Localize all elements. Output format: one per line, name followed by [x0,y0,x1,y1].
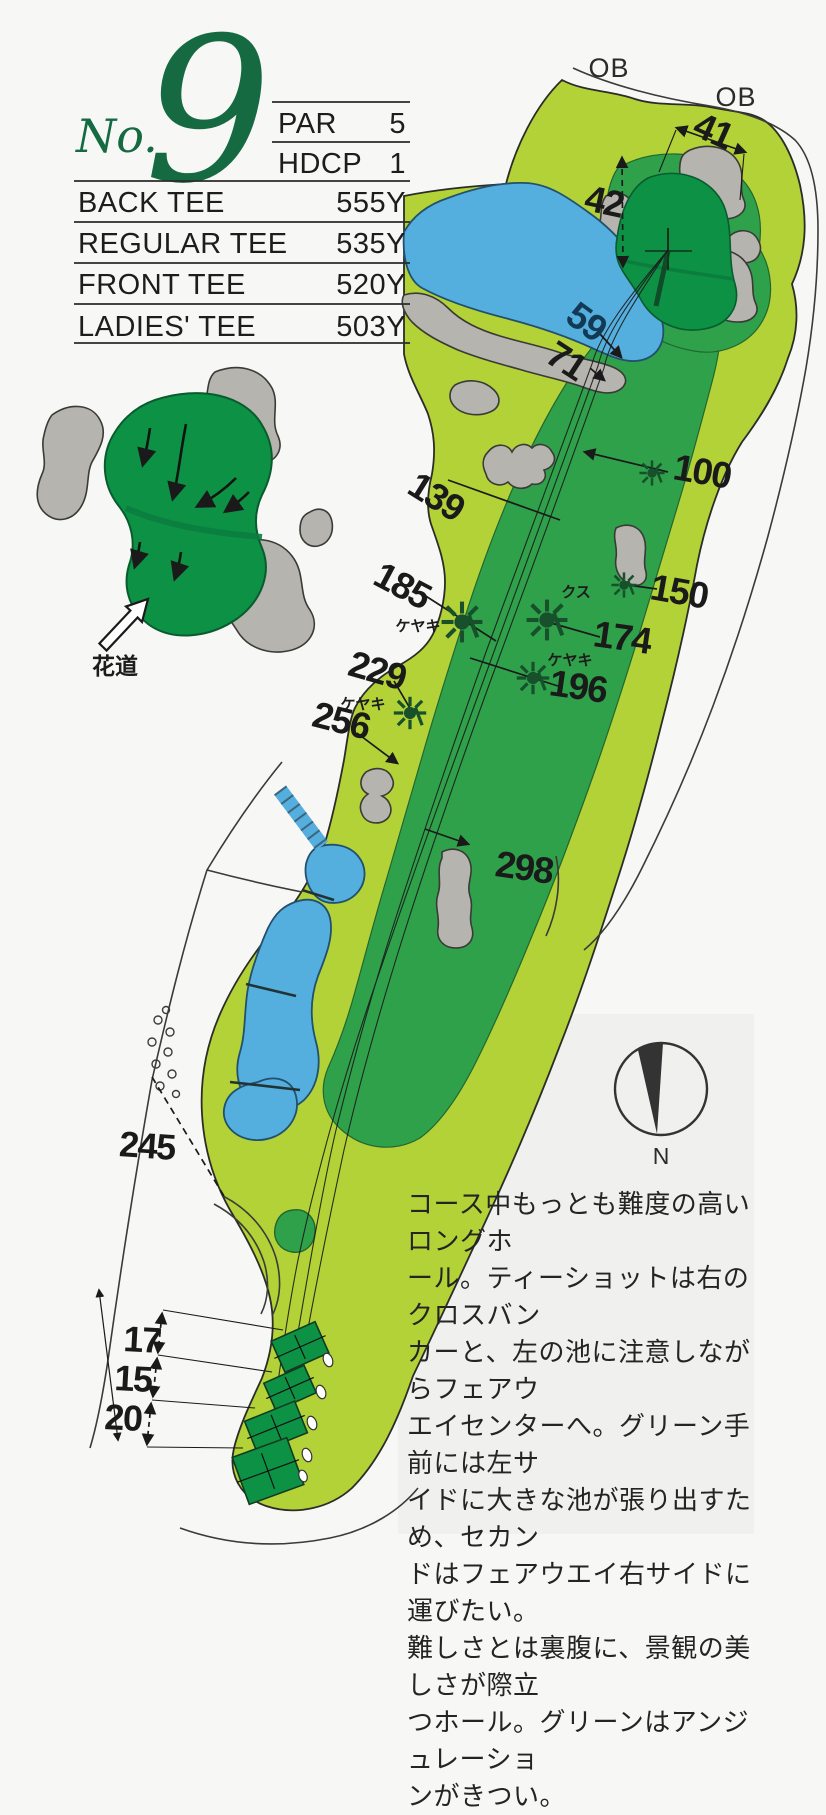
ladies-tee-label: LADIES' TEE [78,311,256,343]
bunker [300,509,332,546]
tee-leader [163,1310,283,1330]
tee-leader [152,1400,255,1408]
bunker [615,525,647,585]
tree-icon [442,602,483,643]
regular-tee-label: REGULAR TEE [78,228,288,260]
tree-label-keyaki: ケヤキ [547,652,592,669]
tree-icon [517,662,549,694]
yardage-229: 229 [344,643,411,698]
rocky-grove [148,1007,180,1098]
bunker [437,849,473,948]
yardage-196: 196 [547,662,610,711]
front-tee-label: FRONT TEE [78,269,246,301]
ob-label: OB [588,53,629,83]
yardage-185: 185 [367,554,438,618]
approach-green-blob [275,1210,315,1253]
tree-label-keyaki: ケヤキ [340,696,385,713]
tee-leader [158,1355,272,1372]
ob-label: OB [715,82,756,112]
yardage-298: 298 [493,843,556,892]
green-detail-inset [37,368,332,652]
left-boundary-branch [207,870,302,892]
approach-direction-arrow [99,599,148,651]
hdcp-label: HDCP [278,148,362,180]
tree-icon [527,600,568,641]
back-tee-label: BACK TEE [78,187,225,219]
tree-label-keyaki: ケヤキ [395,618,440,635]
tee-leader [147,1447,243,1448]
front-tee-value: 520Y [336,269,406,301]
yardage-20: 20 [103,1396,143,1439]
yardage-245: 245 [118,1123,178,1168]
hole-header: No. 9 PAR 5 HDCP 1 BACK TEE 555Y REGULAR… [74,0,410,343]
yardage-17: 17 [122,1318,162,1361]
ladies-tee-value: 503Y [336,311,406,343]
back-tee-value: 555Y [336,187,406,219]
measure-20-seg [147,1404,151,1444]
regular-tee-value: 535Y [336,228,406,260]
tree-label-kusu: クス [561,584,591,601]
compass-north-label: N [653,1143,670,1169]
yardage-174: 174 [591,613,655,662]
par-value: 5 [389,108,406,140]
tree-icon [394,697,426,729]
detail-green [105,393,272,635]
tree-icon [639,460,664,485]
hole-description: コース中もっとも難度の高いロングホ ール。ティーショットは右のクロスバン カーと… [407,1186,757,1815]
par-label: PAR [278,108,337,140]
tree-icon [611,572,636,597]
bunker [37,406,103,519]
measure-15-seg [153,1359,157,1396]
yardage-15: 15 [113,1357,154,1400]
approach-label: 花道 [92,653,138,679]
hdcp-value: 1 [389,148,406,180]
